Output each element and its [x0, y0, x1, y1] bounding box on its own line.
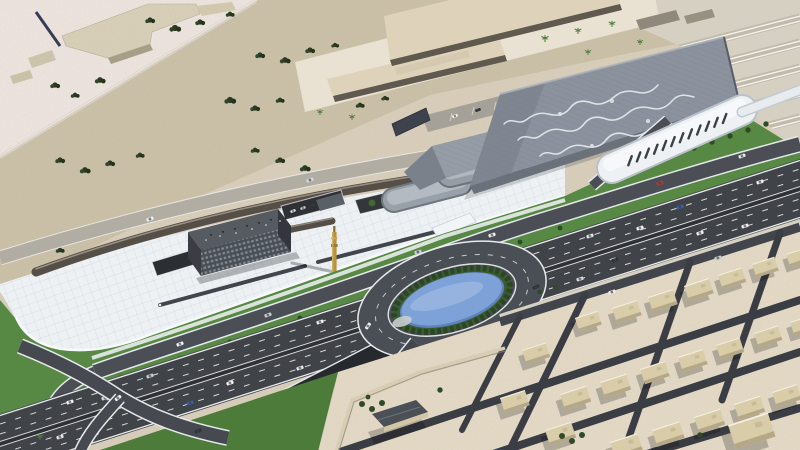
render-viewport: Aerial 3D architectural rendering of a r… [0, 0, 800, 450]
aerial-render: Aerial 3D architectural rendering of a r… [0, 0, 800, 450]
